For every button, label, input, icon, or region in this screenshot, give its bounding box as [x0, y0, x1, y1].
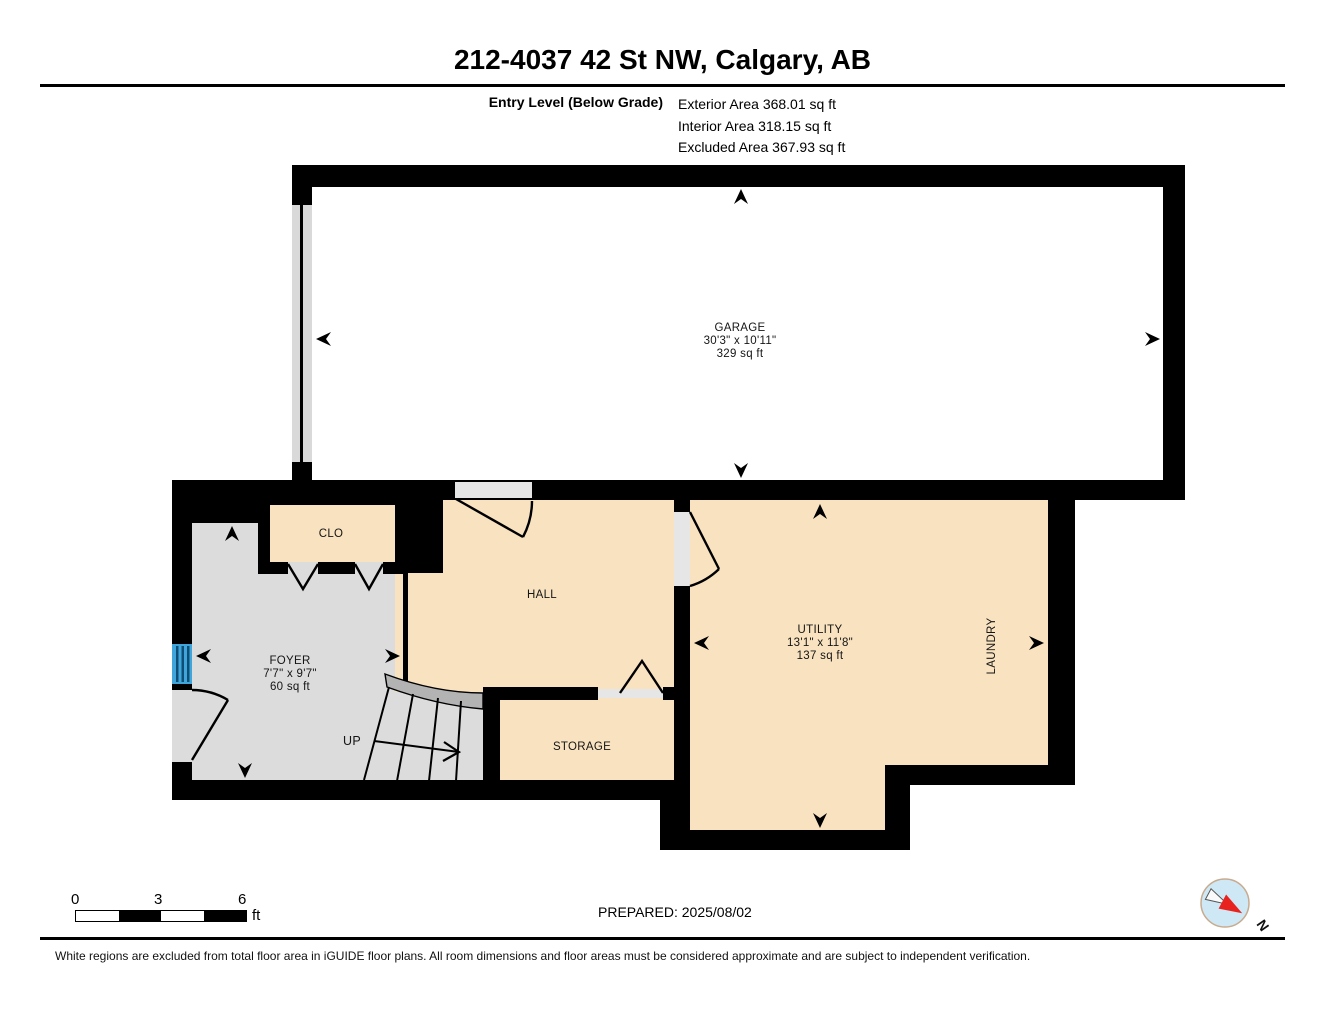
scale-bar-segment	[161, 911, 204, 921]
stairs-up-label: UP	[343, 734, 361, 748]
wall-segment	[1048, 480, 1075, 785]
utility-area: 137 sq ft	[797, 650, 844, 662]
garage-label: GARAGE	[714, 322, 765, 334]
utility-room	[674, 480, 1075, 850]
wall-segment	[258, 562, 288, 574]
wall-segment	[674, 500, 690, 512]
scale-tick-6: 6	[238, 891, 246, 908]
window-mullion	[176, 646, 179, 682]
wall-segment	[258, 493, 270, 573]
garage-area: 329 sq ft	[717, 348, 764, 360]
wall-segment	[395, 493, 443, 573]
scale-bar-segment	[119, 911, 162, 921]
compass-north-label: N	[1254, 917, 1273, 934]
wall-segment	[292, 165, 1185, 187]
closet-label: CLO	[319, 528, 344, 540]
utility-dims: 13'1" x 11'8"	[787, 637, 853, 649]
wall-segment	[318, 562, 355, 574]
garage-dims: 30'3" x 10'11"	[704, 335, 777, 347]
garage-hall-opening	[455, 482, 532, 498]
scale-bar-segment	[204, 911, 247, 921]
window	[172, 644, 192, 684]
disclaimer-text: White regions are excluded from total fl…	[55, 949, 1030, 963]
laundry-label: LAUNDRY	[986, 618, 998, 675]
hall-utility-opening	[674, 512, 690, 586]
prepared-date: PREPARED: 2025/08/02	[598, 904, 752, 920]
wall-segment	[663, 687, 690, 700]
entry-opening	[172, 690, 192, 762]
window-mullion	[182, 646, 185, 682]
wall-segment	[403, 573, 408, 690]
utility-label: UTILITY	[798, 624, 843, 636]
scale-bar	[75, 910, 247, 922]
wall-segment	[1163, 165, 1185, 500]
wall-segment	[483, 687, 500, 800]
storage-label: STORAGE	[553, 741, 611, 753]
wall-segment	[660, 830, 910, 850]
wall-segment	[885, 765, 1075, 785]
floor-plan-drawing: GARAGE 30'3" x 10'11" 329 sq ft CLO HALL…	[0, 0, 1325, 1024]
compass: N	[1201, 879, 1272, 934]
floor-plan-page: 212-4037 42 St NW, Calgary, AB Entry Lev…	[0, 0, 1325, 1024]
hall-label: HALL	[527, 589, 557, 601]
scale-tick-0: 0	[71, 891, 79, 908]
garage-door-line	[300, 205, 303, 462]
foyer-dims: 7'7" x 9'7"	[263, 668, 317, 680]
wall-segment	[383, 562, 408, 574]
scale-unit: ft	[252, 907, 260, 924]
foyer-area: 60 sq ft	[270, 681, 311, 693]
wall-segment	[483, 687, 598, 700]
hall-storage-opening	[598, 689, 663, 698]
footer-divider	[40, 937, 1285, 940]
window-mullion	[187, 646, 190, 682]
scale-bar-segment	[76, 911, 119, 921]
foyer-label: FOYER	[269, 655, 310, 667]
wall-segment	[258, 480, 408, 505]
garage-door	[292, 205, 312, 462]
scale-tick-3: 3	[154, 891, 162, 908]
wall-segment	[172, 780, 690, 800]
